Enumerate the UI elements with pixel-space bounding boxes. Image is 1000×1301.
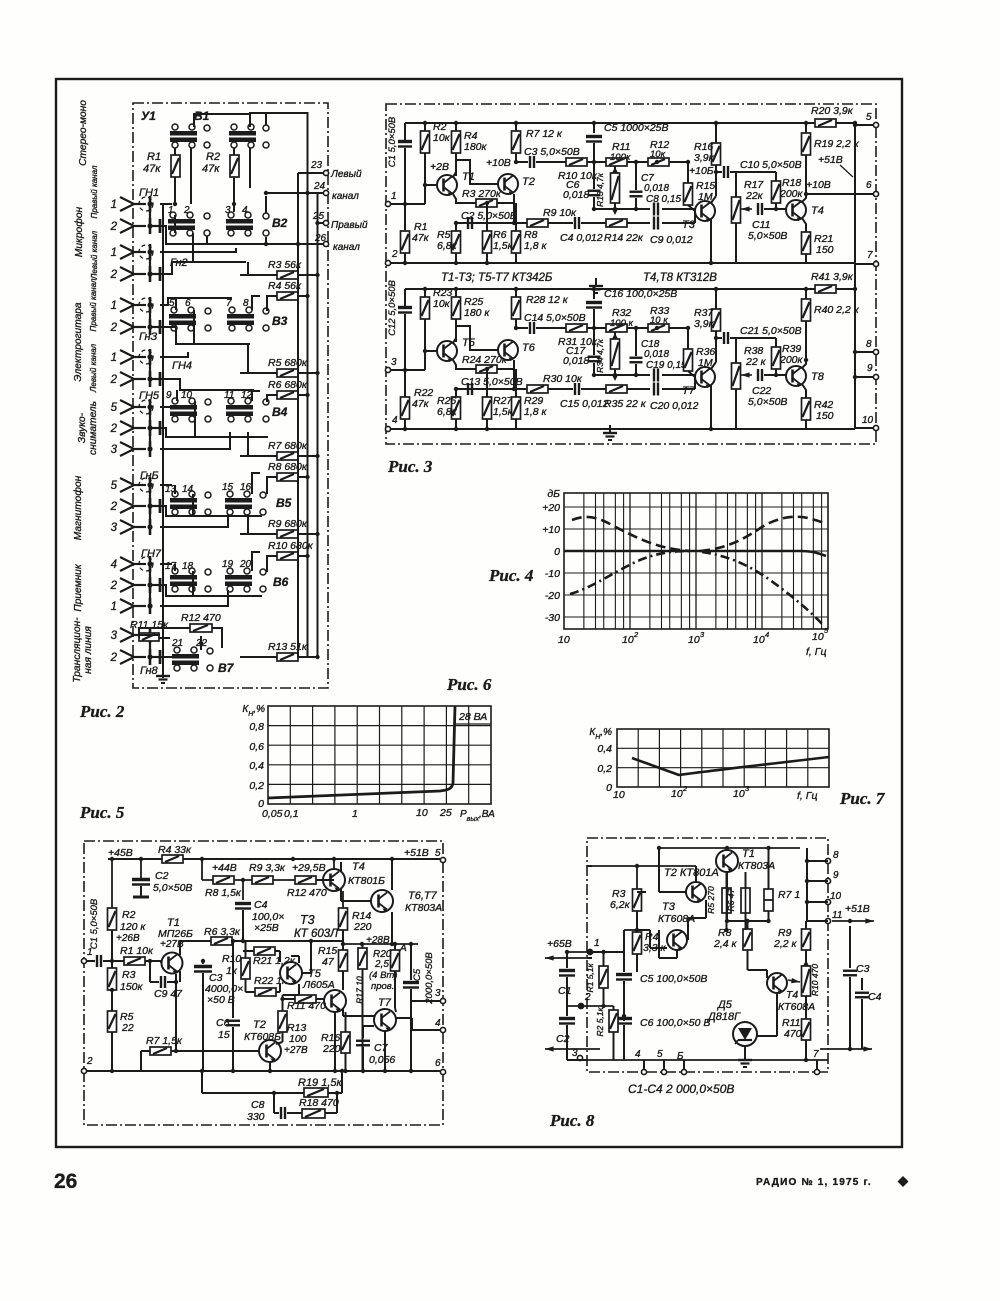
svg-text:R28 12 к: R28 12 к <box>526 294 569 306</box>
svg-text:+51В: +51В <box>845 903 870 915</box>
svg-text:10: 10 <box>830 891 842 902</box>
svg-text:47к: 47к <box>412 398 430 410</box>
svg-text:2: 2 <box>391 249 398 260</box>
svg-text:КТ608А: КТ608А <box>778 1001 815 1013</box>
svg-text:КТ803А: КТ803А <box>405 902 442 914</box>
svg-text:2: 2 <box>110 423 118 435</box>
svg-text:Т5: Т5 <box>462 337 476 349</box>
svg-text:В6: В6 <box>273 575 289 589</box>
svg-text:3: 3 <box>572 1048 578 1059</box>
svg-text:С3 5,0×50В: С3 5,0×50В <box>524 146 580 158</box>
svg-text:2: 2 <box>584 992 591 1003</box>
svg-text:+51В: +51В <box>818 154 843 166</box>
svg-text:+27В: +27В <box>284 1045 308 1056</box>
svg-text:0,056: 0,056 <box>369 1054 395 1066</box>
svg-text:В7: В7 <box>218 661 235 675</box>
svg-text:R13 51к: R13 51к <box>268 641 308 653</box>
svg-text:Правый канал: Правый канал <box>90 165 99 218</box>
svg-text:3: 3 <box>391 357 397 368</box>
svg-text:3: 3 <box>111 444 118 456</box>
svg-text:В2: В2 <box>272 216 288 230</box>
svg-text:Т3: Т3 <box>662 901 676 913</box>
svg-text:-30: -30 <box>545 612 560 624</box>
svg-text:Левый канал: Левый канал <box>89 343 98 393</box>
svg-text:22к: 22к <box>745 190 764 202</box>
svg-text:2,2 к: 2,2 к <box>773 938 798 950</box>
svg-text:180 к: 180 к <box>464 307 490 319</box>
svg-text:6: 6 <box>435 1058 441 1069</box>
svg-text:С9 47: С9 47 <box>154 988 183 1000</box>
svg-text:Рис. 3: Рис. 3 <box>387 457 433 476</box>
svg-text:10к: 10к <box>650 149 666 160</box>
svg-text:3,9к: 3,9к <box>694 152 715 164</box>
svg-text:Л605А: Л605А <box>302 979 335 991</box>
svg-text:R3: R3 <box>122 969 136 981</box>
svg-text:Рис. 8: Рис. 8 <box>549 1111 595 1130</box>
svg-text:0,2: 0,2 <box>597 763 612 775</box>
svg-text:+10: +10 <box>542 524 560 536</box>
svg-text:2: 2 <box>682 784 688 793</box>
svg-text:Т2: Т2 <box>253 1019 266 1031</box>
svg-text:С4: С4 <box>868 991 882 1003</box>
svg-text:-20: -20 <box>545 590 560 602</box>
svg-text:Приемник: Приемник <box>73 563 84 612</box>
svg-text:Гн8: Гн8 <box>140 665 159 677</box>
svg-text:9: 9 <box>867 363 873 374</box>
svg-text:ная линия: ная линия <box>83 626 94 674</box>
svg-text:5: 5 <box>866 112 872 123</box>
svg-text:А: А <box>399 943 407 954</box>
svg-text:2: 2 <box>86 1056 93 1067</box>
svg-text:0,2: 0,2 <box>249 780 264 792</box>
svg-text:10: 10 <box>558 634 570 646</box>
svg-text:1: 1 <box>352 808 358 820</box>
svg-text:+65В: +65В <box>547 938 572 950</box>
svg-text:1к: 1к <box>226 965 238 977</box>
svg-text:В3: В3 <box>272 314 288 328</box>
svg-text:С9 0,012: С9 0,012 <box>650 234 693 246</box>
svg-text:26: 26 <box>54 1170 77 1193</box>
svg-text:28 ВА: 28 ВА <box>458 711 487 723</box>
svg-text:8: 8 <box>866 339 872 350</box>
svg-text:Т4: Т4 <box>352 861 365 873</box>
svg-text:С2: С2 <box>155 870 169 882</box>
svg-text:R8 1,5к: R8 1,5к <box>205 887 242 899</box>
svg-text:R1 5,1к: R1 5,1к <box>585 962 595 992</box>
svg-text:200к: 200к <box>779 188 804 200</box>
svg-text:3: 3 <box>111 630 118 642</box>
svg-text:6,8к: 6,8к <box>437 240 458 252</box>
svg-text:В4: В4 <box>272 405 288 419</box>
svg-text:1: 1 <box>111 601 117 613</box>
svg-text:150к: 150к <box>120 981 144 993</box>
svg-text:R7 12 к: R7 12 к <box>526 128 563 140</box>
svg-text:Рис. 2: Рис. 2 <box>79 702 125 721</box>
svg-text:С7: С7 <box>374 1042 389 1054</box>
svg-text:R12 470: R12 470 <box>287 887 327 899</box>
svg-text:R8 680к: R8 680к <box>268 461 308 473</box>
svg-text:180к: 180к <box>464 141 488 153</box>
svg-text:100: 100 <box>289 1033 307 1045</box>
svg-text:пров.: пров. <box>371 981 394 992</box>
svg-text:+10Б: +10Б <box>689 165 714 177</box>
svg-text:7: 7 <box>867 250 873 261</box>
svg-text:Магнитофон: Магнитофон <box>72 475 84 540</box>
svg-text:10: 10 <box>622 634 634 646</box>
svg-text:-10: -10 <box>545 568 560 580</box>
svg-text:330: 330 <box>247 1111 265 1123</box>
svg-text:С1-С4 2 000,0×50В: С1-С4 2 000,0×50В <box>628 1082 734 1096</box>
svg-text:2: 2 <box>110 501 118 513</box>
svg-text:24: 24 <box>313 181 326 192</box>
svg-text:Д818Г: Д818Г <box>706 1011 741 1023</box>
svg-text:Т7: Т7 <box>682 385 696 397</box>
svg-text:С8: С8 <box>251 1099 265 1111</box>
svg-text:Т4: Т4 <box>786 989 798 1001</box>
svg-text:Т1-Т3; Т5-Т7 КТ342Б: Т1-Т3; Т5-Т7 КТ342Б <box>441 272 553 284</box>
svg-text:×25В: ×25В <box>254 922 279 934</box>
svg-text:ГнЗ: ГнЗ <box>139 331 158 343</box>
svg-text:1: 1 <box>111 199 117 211</box>
svg-text:Правый канал: Правый канал <box>89 278 98 331</box>
svg-text:1,8 к: 1,8 к <box>524 406 548 418</box>
svg-text:2: 2 <box>633 630 639 639</box>
svg-text:R3 56к: R3 56к <box>268 259 302 271</box>
svg-text:×50 В: ×50 В <box>207 994 235 1006</box>
svg-text:Т6: Т6 <box>522 342 536 354</box>
svg-text:4: 4 <box>435 1018 441 1029</box>
svg-text:С4: С4 <box>254 899 268 911</box>
svg-text:4: 4 <box>111 559 117 571</box>
svg-text:+51В: +51В <box>404 847 429 859</box>
svg-text:R7 1,5к: R7 1,5к <box>146 1035 183 1047</box>
svg-text:R2 5,1к: R2 5,1к <box>595 1006 605 1036</box>
svg-text:С5: С5 <box>412 968 423 981</box>
svg-text:0,1: 0,1 <box>284 808 299 820</box>
svg-text:11: 11 <box>832 910 842 921</box>
svg-text:1: 1 <box>111 352 117 364</box>
svg-text:С6: С6 <box>216 1017 230 1029</box>
svg-text:220: 220 <box>322 1043 341 1055</box>
svg-text:10: 10 <box>862 415 874 426</box>
svg-text:R7 680к: R7 680к <box>268 440 308 452</box>
svg-text:5: 5 <box>435 848 441 859</box>
svg-text:R1: R1 <box>147 151 161 163</box>
svg-text:R41 3,9к: R41 3,9к <box>811 271 854 283</box>
svg-text:С19 0,15: С19 0,15 <box>646 360 687 371</box>
svg-text:R18 470: R18 470 <box>299 1097 339 1109</box>
svg-text:0,6: 0,6 <box>249 741 264 753</box>
svg-text:4: 4 <box>392 415 398 426</box>
svg-text:Микрофон: Микрофон <box>73 207 85 258</box>
svg-text:+2В: +2В <box>430 161 449 173</box>
svg-text:Звуко-: Звуко- <box>77 412 88 443</box>
svg-text:0,018: 0,018 <box>563 189 589 201</box>
svg-text:Электрогитара: Электрогитара <box>73 302 84 382</box>
svg-text:2,5: 2,5 <box>374 959 389 970</box>
svg-text:3: 3 <box>435 988 441 999</box>
svg-text:f, Гц: f, Гц <box>806 646 826 658</box>
svg-text:R14 22к: R14 22к <box>604 232 644 244</box>
svg-text:С8 0,15: С8 0,15 <box>646 194 681 205</box>
svg-text:Т1: Т1 <box>462 171 475 183</box>
svg-text:R5 680к: R5 680к <box>268 357 308 369</box>
svg-text:0,018: 0,018 <box>644 183 669 194</box>
svg-text:R30 10к: R30 10к <box>543 373 583 385</box>
svg-text:47к: 47к <box>143 163 161 175</box>
svg-text:26: 26 <box>314 233 327 244</box>
svg-text:R19 2,2 к: R19 2,2 к <box>814 138 860 150</box>
svg-text:5,0×50В: 5,0×50В <box>153 882 192 894</box>
svg-text:0,05: 0,05 <box>262 808 283 820</box>
svg-text:Т7: Т7 <box>378 997 392 1009</box>
svg-text:2: 2 <box>110 374 118 386</box>
svg-text:23: 23 <box>310 160 323 171</box>
svg-text:Т6,Т7: Т6,Т7 <box>408 890 438 902</box>
svg-text:15: 15 <box>218 1029 230 1041</box>
svg-text:R35 22 к: R35 22 к <box>604 398 647 410</box>
svg-text:С20 0,012: С20 0,012 <box>650 400 699 412</box>
svg-text:1М: 1М <box>698 191 713 203</box>
svg-text:канал: канал <box>332 191 359 202</box>
svg-text:1: 1 <box>391 191 397 202</box>
svg-text:1: 1 <box>111 247 117 259</box>
svg-text:R2: R2 <box>206 151 220 163</box>
svg-text:10: 10 <box>671 788 683 800</box>
svg-text:R5 270: R5 270 <box>706 886 716 914</box>
svg-text:R20 3,9к: R20 3,9к <box>811 105 854 117</box>
svg-text:2,4 к: 2,4 к <box>713 938 738 950</box>
svg-text:С1: С1 <box>558 985 571 997</box>
svg-text:С2 5,0×50В: С2 5,0×50В <box>461 210 517 222</box>
svg-text:R9 3,3к: R9 3,3к <box>249 862 286 874</box>
svg-text:Т8: Т8 <box>811 371 825 383</box>
svg-text:R12 470: R12 470 <box>181 612 221 624</box>
svg-text:+20: +20 <box>542 502 560 514</box>
svg-text:0: 0 <box>606 782 612 794</box>
svg-text:С6 100,0×50 В: С6 100,0×50 В <box>640 1017 710 1029</box>
svg-text:200к: 200к <box>779 354 804 366</box>
svg-text:У1: У1 <box>141 109 156 123</box>
svg-text:Т3: Т3 <box>300 913 315 927</box>
svg-text:47к: 47к <box>202 163 220 175</box>
svg-text:25: 25 <box>439 807 452 819</box>
svg-text:10: 10 <box>733 788 745 800</box>
svg-text:R11 470: R11 470 <box>287 1000 326 1012</box>
svg-text:1М: 1М <box>698 357 713 369</box>
svg-text:10: 10 <box>688 634 700 646</box>
svg-text:1: 1 <box>594 938 600 949</box>
svg-text:Т4: Т4 <box>811 205 824 217</box>
svg-text:R9 10к: R9 10к <box>543 207 577 219</box>
svg-text:5: 5 <box>657 1049 663 1060</box>
svg-text:3: 3 <box>111 522 118 534</box>
svg-text:7: 7 <box>813 1049 819 1060</box>
svg-text:С5 100,0×50В: С5 100,0×50В <box>640 973 707 985</box>
svg-text:В1: В1 <box>194 109 210 123</box>
svg-text:R10: R10 <box>222 953 241 965</box>
svg-text:f, Гц: f, Гц <box>797 790 817 802</box>
svg-text:1: 1 <box>111 300 117 312</box>
svg-text:Рис. 6: Рис. 6 <box>446 675 492 694</box>
svg-text:С10 5,0×50В: С10 5,0×50В <box>740 159 802 171</box>
svg-text:2: 2 <box>110 269 118 281</box>
svg-text:Рис. 5: Рис. 5 <box>79 803 125 822</box>
svg-text:2: 2 <box>110 580 118 592</box>
svg-text:С2: С2 <box>556 1033 570 1045</box>
svg-text:5,0×50В: 5,0×50В <box>748 230 787 242</box>
svg-text:С3: С3 <box>856 963 870 975</box>
svg-text:Рис. 7: Рис. 7 <box>839 789 886 808</box>
svg-text:R9 680к: R9 680к <box>268 518 308 530</box>
svg-text:R34 4,7к: R34 4,7к <box>595 338 605 373</box>
svg-text:150: 150 <box>816 410 834 422</box>
svg-text:2: 2 <box>110 322 118 334</box>
svg-text:10 к: 10 к <box>650 315 668 326</box>
svg-text:10: 10 <box>812 631 824 643</box>
svg-text:Левый: Левый <box>330 169 362 180</box>
svg-text:0,018: 0,018 <box>563 355 589 367</box>
svg-text:6,8к: 6,8к <box>437 406 458 418</box>
svg-text:R4 56к: R4 56к <box>268 280 302 292</box>
svg-text:КТ803А: КТ803А <box>738 860 775 872</box>
svg-text:0: 0 <box>554 546 560 558</box>
svg-text:С5 1000×25В: С5 1000×25В <box>604 122 669 134</box>
svg-text:Стерео-моно: Стерео-моно <box>78 100 89 166</box>
svg-text:220: 220 <box>353 921 372 933</box>
svg-text:С1 5,0×50В: С1 5,0×50В <box>89 898 100 949</box>
svg-text:Т2 КТ801А: Т2 КТ801А <box>664 867 719 879</box>
svg-text:R10 470: R10 470 <box>810 964 820 996</box>
svg-text:R13 4,7к: R13 4,7к <box>595 172 605 207</box>
svg-text:(4 Вт): (4 Вт) <box>369 970 398 981</box>
svg-text:3,9к: 3,9к <box>694 318 715 330</box>
svg-text:R7 1: R7 1 <box>778 889 800 901</box>
svg-text:150: 150 <box>816 244 834 256</box>
svg-text:10к: 10к <box>433 298 451 310</box>
svg-text:R2: R2 <box>122 909 136 921</box>
svg-text:+29,5В: +29,5В <box>292 862 326 874</box>
svg-text:+44В: +44В <box>212 862 237 874</box>
svg-text:С4 0,012: С4 0,012 <box>560 232 603 244</box>
svg-text:+10В: +10В <box>806 179 831 191</box>
svg-text:В5: В5 <box>276 496 292 510</box>
svg-text:канал: канал <box>333 242 360 253</box>
svg-text:47: 47 <box>322 956 335 968</box>
svg-text:2: 2 <box>110 652 118 664</box>
svg-text:0,8: 0,8 <box>249 721 264 733</box>
svg-text:КТ801Б: КТ801Б <box>348 875 385 887</box>
svg-text:10к: 10к <box>433 132 451 144</box>
svg-text:0,018: 0,018 <box>644 349 669 360</box>
svg-text:ГН7: ГН7 <box>141 548 162 560</box>
svg-text:10: 10 <box>753 634 765 646</box>
svg-text:С12 5,0×50В: С12 5,0×50В <box>387 279 398 335</box>
svg-text:10: 10 <box>416 807 428 819</box>
svg-text:5: 5 <box>111 480 118 492</box>
svg-text:Т2: Т2 <box>522 176 535 188</box>
svg-text:10: 10 <box>613 789 625 801</box>
svg-text:5: 5 <box>111 402 118 414</box>
svg-text:С15 0,012: С15 0,012 <box>560 398 609 410</box>
svg-text:Трансляцион-: Трансляцион- <box>72 617 83 683</box>
svg-text:4: 4 <box>635 1049 641 1060</box>
svg-text:0,4: 0,4 <box>249 760 264 772</box>
svg-text:8: 8 <box>833 850 839 861</box>
svg-text:Б: Б <box>677 1051 684 1062</box>
svg-text:Правый: Правый <box>331 220 368 231</box>
svg-text:5,0×50В: 5,0×50В <box>748 396 787 408</box>
svg-text:22 к: 22 к <box>745 356 767 368</box>
svg-text:22: 22 <box>121 1022 134 1034</box>
svg-text:С1 5,0×50В: С1 5,0×50В <box>387 116 398 167</box>
svg-text:6: 6 <box>866 180 872 191</box>
svg-text:0,4: 0,4 <box>597 743 612 755</box>
svg-text:дБ: дБ <box>547 488 560 500</box>
svg-text:Т3: Т3 <box>682 219 696 231</box>
svg-text:+10В: +10В <box>486 157 511 169</box>
svg-text:R1 10к: R1 10к <box>120 945 154 957</box>
svg-text:Т4,Т8 КТ312В: Т4,Т8 КТ312В <box>643 272 717 284</box>
svg-text:120 к: 120 к <box>120 921 146 933</box>
svg-text:Д5: Д5 <box>716 999 733 1011</box>
svg-text:РАДИО № 1, 1975 г.: РАДИО № 1, 1975 г. <box>756 1177 872 1188</box>
svg-text:9: 9 <box>833 870 839 881</box>
svg-text:2: 2 <box>110 221 118 233</box>
svg-text:470: 470 <box>784 1028 802 1040</box>
svg-text:1,8 к: 1,8 к <box>524 240 548 252</box>
svg-text:47к: 47к <box>412 232 430 244</box>
svg-text:+26В: +26В <box>116 933 140 944</box>
svg-text:С21 5,0×50В: С21 5,0×50В <box>740 325 802 337</box>
svg-text:9: 9 <box>166 390 172 401</box>
svg-text:Рис. 4: Рис. 4 <box>488 566 533 585</box>
svg-text:6,2к: 6,2к <box>610 899 631 911</box>
svg-text:2000,0×50В: 2000,0×50В <box>424 952 435 1005</box>
svg-text:4: 4 <box>765 630 769 639</box>
svg-text:1,5к: 1,5к <box>493 406 514 418</box>
svg-text:КТ608Б: КТ608Б <box>244 1031 281 1043</box>
svg-text:КТ 603Л: КТ 603Л <box>294 928 338 940</box>
svg-text:С16 100,0×25В: С16 100,0×25В <box>604 288 677 300</box>
svg-text:Левый канал: Левый канал <box>90 230 99 280</box>
svg-text:R6 680к: R6 680к <box>268 379 308 391</box>
svg-text:1,5к: 1,5к <box>493 240 514 252</box>
svg-text:С13 5,0×50В: С13 5,0×50В <box>461 376 523 388</box>
svg-text:R40 2,2 к: R40 2,2 к <box>814 304 860 316</box>
svg-text:сниматель: сниматель <box>88 401 99 455</box>
svg-text:Т1: Т1 <box>742 848 755 860</box>
svg-text:ГН4: ГН4 <box>172 360 192 372</box>
